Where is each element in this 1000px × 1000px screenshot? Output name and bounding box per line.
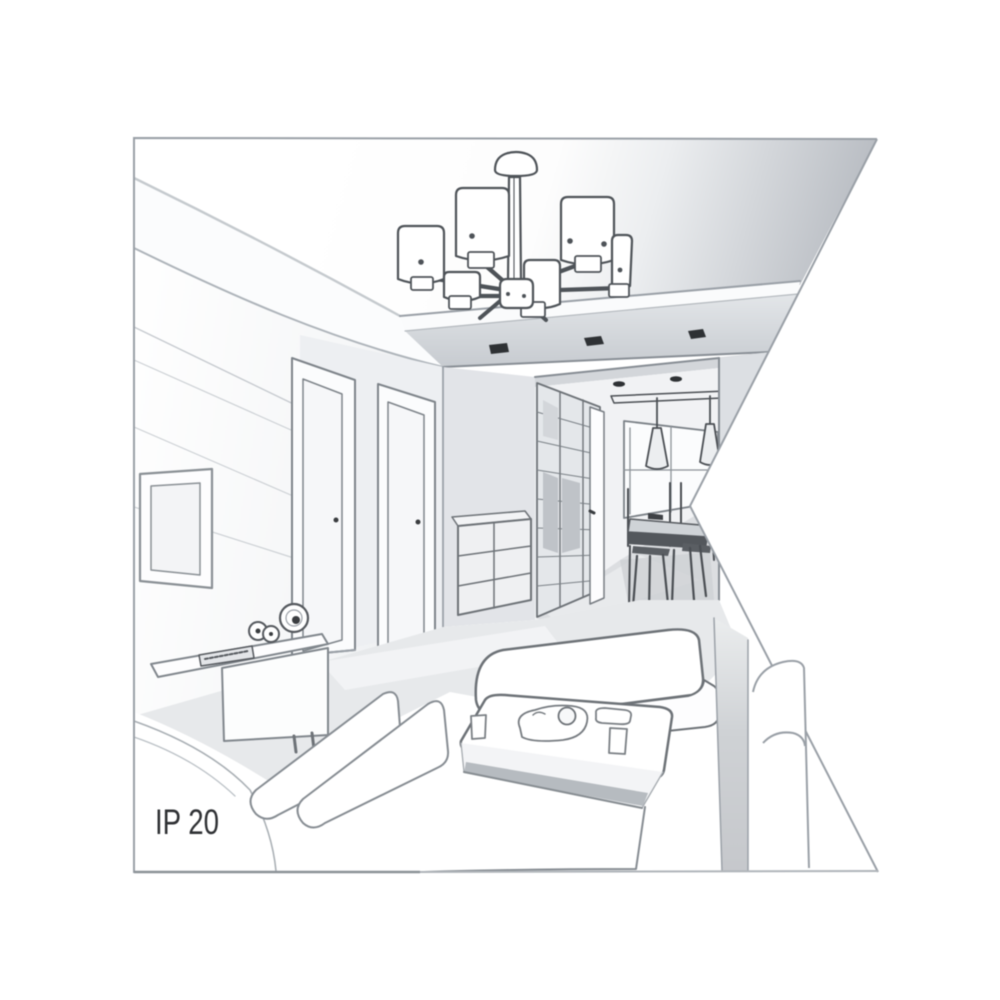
- svg-text:IP 20: IP 20: [155, 803, 219, 842]
